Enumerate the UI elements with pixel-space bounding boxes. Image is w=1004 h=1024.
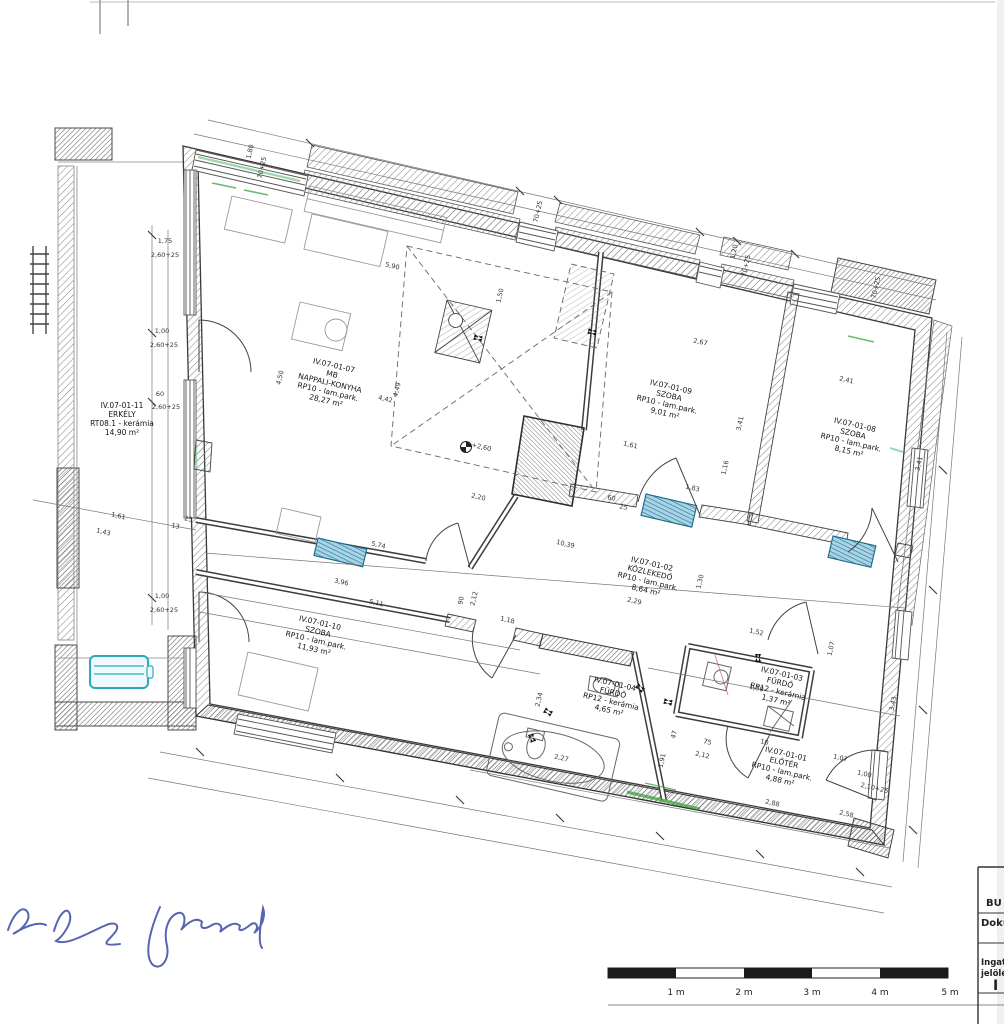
room-label: IV.07-01-02KÖZLEKEDŐRP10 - lam.park.8,64… [615, 552, 684, 601]
title-block-row3c: I [993, 978, 998, 994]
dimension-text: 3,41 [735, 416, 746, 432]
title-block-row2: Doku [981, 918, 1004, 929]
dimension-text: 2,60+25 [150, 606, 178, 614]
furniture [224, 186, 491, 711]
washing-machine [703, 662, 732, 691]
dimension-text: 13 [171, 521, 181, 531]
dimension-text: 25 [619, 502, 629, 512]
floor-plan-drawing: IV.07-01-07MBNAPPALI-KONYHARP10 - lam.pa… [0, 0, 1004, 1024]
room-label: IV.07-01-09SZOBARP10 - lam.park.9,01 m² [634, 375, 703, 424]
dimension-text: 2,58 [838, 809, 854, 820]
dimension-text: 1,61 [110, 511, 126, 522]
dimension-text: 1,16 [720, 460, 731, 476]
scale-bar: 1 m 2 m 3 m 4 m 5 m [608, 968, 1004, 1005]
room-label-line: IV.07-01-11 [101, 401, 144, 410]
scale-label-3m: 3 m [803, 988, 820, 998]
dimension-text: 1,75 [158, 237, 172, 245]
door-living-corridor [426, 523, 470, 568]
dimension-text: 2,27 [553, 753, 569, 764]
dimension-text: 1,07 [826, 641, 837, 657]
room-label-line: RT08.1 - kerámia [90, 419, 154, 428]
title-block-row3b: jelölé [980, 968, 1004, 979]
dimension-text: 1,18 [499, 615, 515, 626]
window-top-2 [516, 222, 558, 251]
dimension-text: 2,29 [626, 596, 642, 607]
scale-label-4m: 4 m [871, 988, 888, 998]
signatures [8, 907, 264, 967]
room-label: IV.07-01-07MBNAPPALI-KONYHARP10 - lam.pa… [293, 354, 367, 413]
scale-label-2m: 2 m [735, 988, 752, 998]
dimension-text: 60 [156, 390, 164, 398]
dimension-text: 2,67 [692, 337, 708, 348]
scale-label-1m: 1 m [667, 988, 684, 998]
interior-walls [194, 252, 913, 800]
dimension-text: 1,00 [155, 592, 169, 600]
dimension-text: 2,60+25 [150, 341, 178, 349]
radiator [828, 536, 876, 567]
toilet [524, 728, 547, 761]
dimension-text: 2,34 [534, 692, 545, 708]
dimension-text: 1,00 [155, 327, 169, 335]
room-label: IV.07-01-11ERKÉLYRT08.1 - kerámia14,90 m… [90, 401, 154, 437]
dimension-text: 5,90 [384, 261, 400, 272]
railing-symbol [30, 246, 49, 334]
dimension-text: +2,60 [471, 441, 492, 453]
dimension-text: 2,60+25 [151, 251, 179, 259]
dimension-text: 1,91 [657, 753, 668, 769]
dimension-text: 1,52 [748, 627, 764, 638]
scanned-floor-plan-sheet: IV.07-01-07MBNAPPALI-KONYHARP10 - lam.pa… [0, 0, 1004, 1024]
dimension-text: 2,88 [764, 798, 780, 809]
dimension-text: 1,30 [695, 574, 706, 590]
dimension-text: 10,39 [555, 538, 575, 550]
door-balcony-living [199, 320, 251, 372]
room-label: IV.07-01-01ELŐTÉRRP10 - lam.park.4,88 m² [749, 742, 818, 791]
room-label: IV.07-01-08SZOBARP10 - lam.park.8,15 m² [818, 413, 887, 462]
scale-label-5m: 5 m [941, 988, 958, 998]
dimension-text: 75 [703, 737, 713, 747]
dimension-chains [33, 120, 962, 913]
room-label-line: 14,90 m² [105, 428, 139, 437]
title-block-row3a: Ingat [981, 958, 1004, 968]
scan-artifacts [90, 0, 1004, 1024]
dimension-text: 10 [760, 737, 770, 747]
dimension-text: 2,12 [694, 750, 710, 761]
dimension-text: 70+25 [532, 200, 545, 223]
title-block-row1: BU [986, 898, 1002, 909]
door-bath4 [472, 627, 516, 678]
dimension-text: 2,20 [470, 492, 486, 503]
level-mark-symbol [461, 442, 472, 453]
dimension-text: 1,50 [495, 288, 506, 304]
room-label: IV.07-01-10SZOBARP10 - lam.park.11,93 m² [283, 611, 352, 660]
window-right-2 [892, 610, 912, 660]
door-eloter-opening [768, 602, 818, 654]
dimension-text: 3,96 [333, 577, 349, 588]
dimension-text: 1,07 [832, 753, 848, 764]
dimension-text: 1,83 [684, 483, 700, 494]
radiator [641, 494, 697, 527]
signature-1 [8, 909, 120, 944]
room-label-line: ERKÉLY [108, 410, 136, 419]
balcony-bench [90, 656, 153, 688]
dimension-text: 90 [456, 596, 466, 606]
dimension-text: 1,43 [95, 527, 111, 538]
window-top-3 [696, 262, 724, 288]
dimension-text: 4,50 [275, 370, 286, 386]
dimension-text: 2,41 [838, 375, 854, 386]
dimension-text: 25 [184, 514, 194, 524]
dimension-text: 47 [669, 730, 679, 740]
signature-2 [148, 907, 264, 967]
dimension-text: 4,49 [392, 382, 403, 398]
dimension-text: 1,61 [622, 440, 638, 451]
dimension-text: 2,12 [469, 591, 480, 607]
dimension-text: 2,60+25 [152, 403, 180, 411]
